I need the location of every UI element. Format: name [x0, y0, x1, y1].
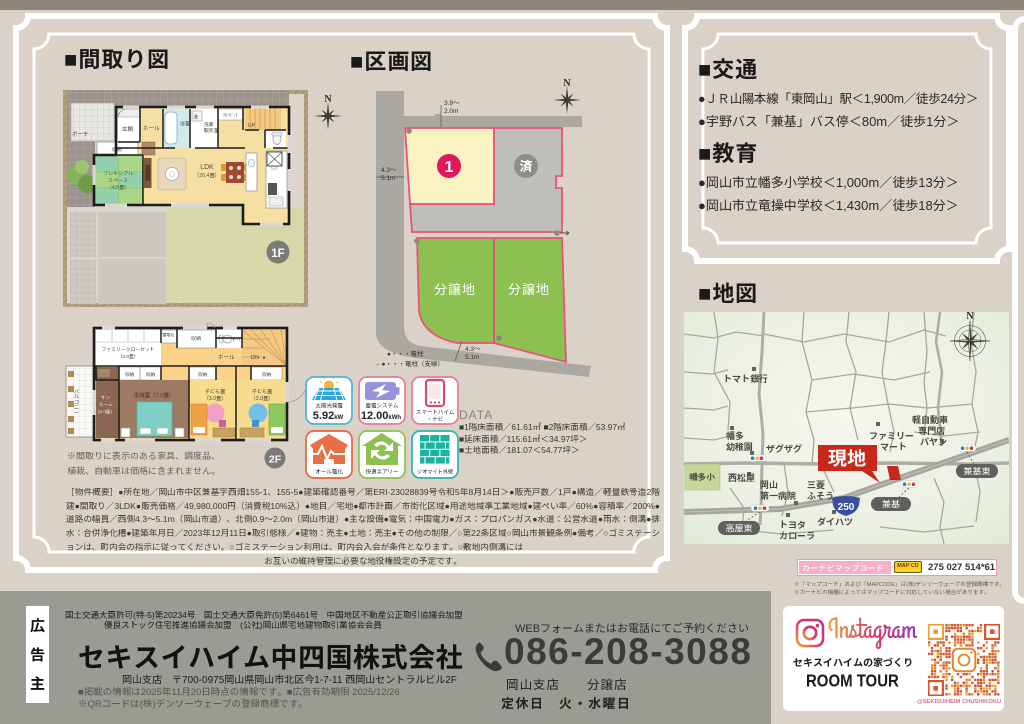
- svg-text:1F: 1F: [271, 248, 284, 260]
- svg-text:4.3〜: 4.3〜: [465, 346, 481, 353]
- svg-text:スペース: スペース: [108, 178, 128, 184]
- svg-text:ダイハツ: ダイハツ: [817, 517, 853, 527]
- svg-text:4.3〜: 4.3〜: [381, 167, 397, 174]
- svg-text:分譲地: 分譲地: [434, 282, 476, 297]
- svg-text:子ども室: 子ども室: [252, 388, 274, 395]
- svg-text:2F: 2F: [269, 454, 282, 466]
- svg-text:収納: 収納: [125, 372, 135, 377]
- svg-text:5.1m: 5.1m: [381, 175, 395, 182]
- svg-text:バヤン: バヤン: [920, 437, 947, 447]
- svg-text:ファミリー: ファミリー: [869, 431, 914, 441]
- svg-text:三菱: 三菱: [807, 480, 825, 490]
- svg-text:ｸﾛｰｾﾞｯﾄ: ｸﾛｰｾﾞｯﾄ: [223, 113, 238, 118]
- svg-text:N: N: [563, 78, 571, 89]
- svg-text:兼基: 兼基: [882, 500, 900, 510]
- svg-text:LDK: LDK: [200, 164, 214, 171]
- svg-text:脱衣室: 脱衣室: [203, 127, 219, 134]
- svg-text:トヨタ: トヨタ: [779, 520, 806, 530]
- svg-text:ホール: ホール: [218, 354, 235, 361]
- svg-text:ホール: ホール: [143, 125, 160, 132]
- svg-text:太陽光発電: 太陽光発電: [315, 403, 343, 410]
- svg-text:兼基東: 兼基東: [963, 467, 990, 477]
- svg-text:軽自動車: 軽自動車: [912, 414, 948, 425]
- svg-text:フレキシブル: フレキシブル: [103, 170, 133, 177]
- svg-text:トマト銀行: トマト銀行: [723, 374, 769, 384]
- svg-text:収納: 収納: [198, 372, 208, 377]
- svg-text:UP: UP: [248, 123, 256, 129]
- svg-text:収納: 収納: [262, 372, 272, 377]
- svg-text:幡多: 幡多: [726, 431, 744, 441]
- svg-text:主寝室（7.0畳）: 主寝室（7.0畳）: [134, 392, 175, 399]
- svg-text:快適エアリー: 快適エアリー: [365, 469, 398, 476]
- svg-text:250: 250: [838, 502, 855, 513]
- svg-text:←●・・・電柱（支線）: ←●・・・電柱（支線）: [375, 360, 444, 368]
- svg-text:第一病院: 第一病院: [760, 491, 797, 501]
- svg-text:岡山: 岡山: [760, 480, 778, 490]
- svg-text:3.9〜: 3.9〜: [444, 100, 460, 107]
- svg-text:幼稚園: 幼稚園: [725, 442, 753, 452]
- svg-text:スマートハイム: スマートハイム: [416, 409, 455, 416]
- svg-text:N: N: [966, 312, 974, 322]
- svg-text:DN: DN: [251, 355, 259, 361]
- svg-text:分譲地: 分譲地: [508, 282, 550, 297]
- svg-text:専門店: 専門店: [918, 426, 945, 436]
- svg-text:ジオマイト外壁: ジオマイト外壁: [417, 469, 453, 476]
- svg-text:5.1m: 5.1m: [465, 354, 479, 361]
- svg-text:洗: 洗: [193, 115, 198, 121]
- svg-text:幡多小: 幡多小: [689, 472, 715, 482]
- svg-text:ふそう: ふそう: [807, 491, 834, 501]
- svg-text:現地: 現地: [828, 449, 866, 470]
- svg-text:ルーム: ルーム: [99, 402, 113, 407]
- svg-text:(2.0畳): (2.0畳): [98, 409, 113, 414]
- svg-text:●・・・電柱: ●・・・電柱: [387, 350, 424, 358]
- svg-text:ポーチ: ポーチ: [72, 131, 89, 138]
- svg-text:（4.5畳）: （4.5畳）: [107, 184, 129, 191]
- svg-text:収納: 収納: [146, 372, 156, 377]
- svg-text:2.0m: 2.0m: [444, 108, 458, 115]
- svg-text:高屋東: 高屋東: [725, 524, 752, 534]
- svg-text:蓄電池: 蓄電池: [163, 333, 175, 337]
- svg-text:蓄電システム: 蓄電システム: [365, 403, 399, 410]
- svg-text:（3.0畳）: （3.0畳）: [204, 395, 227, 402]
- svg-text:収納: 収納: [191, 335, 201, 342]
- svg-text:（20.4畳）: （20.4畳）: [194, 172, 220, 179]
- svg-text:サン: サン: [101, 395, 111, 400]
- svg-text:1: 1: [445, 159, 454, 176]
- svg-text:西松屋: 西松屋: [728, 473, 755, 483]
- svg-text:マート: マート: [880, 442, 907, 452]
- svg-text:N: N: [324, 94, 332, 105]
- svg-text:（3.0畳）: （3.0畳）: [251, 395, 274, 402]
- svg-text:（3.9畳）: （3.9畳）: [117, 353, 138, 360]
- svg-text:浴室: 浴室: [180, 120, 190, 127]
- svg-text:オール電化: オール電化: [315, 469, 343, 476]
- svg-text:ファミリークローゼット: ファミリークローゼット: [102, 346, 155, 353]
- svg-text:洗面: 洗面: [204, 122, 214, 128]
- svg-text:ザグザグ: ザグザグ: [766, 444, 802, 454]
- svg-text:済: 済: [519, 159, 532, 174]
- svg-text:玄関: 玄関: [122, 126, 134, 133]
- svg-text:・ナビ: ・ナビ: [427, 416, 444, 423]
- svg-text:子ども室: 子ども室: [205, 388, 227, 395]
- svg-text:カローラ: カローラ: [779, 531, 815, 541]
